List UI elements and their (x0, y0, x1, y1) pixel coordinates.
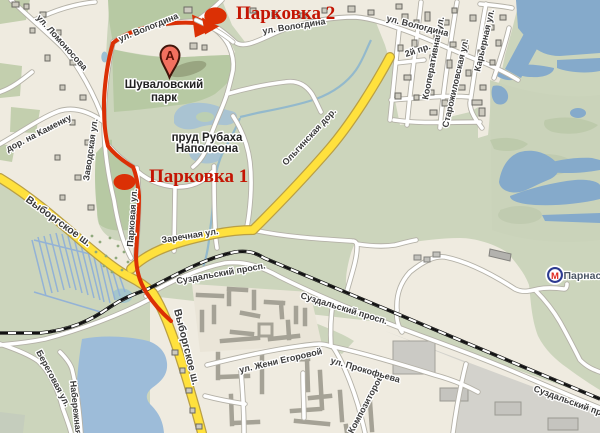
svg-text:Парнас: Парнас (564, 270, 600, 282)
svg-text:парк: парк (151, 92, 177, 104)
svg-text:A: A (165, 48, 175, 63)
svg-text:Парковка 2: Парковка 2 (236, 3, 335, 24)
svg-text:М: М (551, 271, 559, 282)
svg-text:Шуваловский: Шуваловский (125, 79, 204, 91)
svg-text:Парковка 1: Парковка 1 (149, 166, 248, 187)
svg-text:Наполеона: Наполеона (176, 143, 239, 155)
